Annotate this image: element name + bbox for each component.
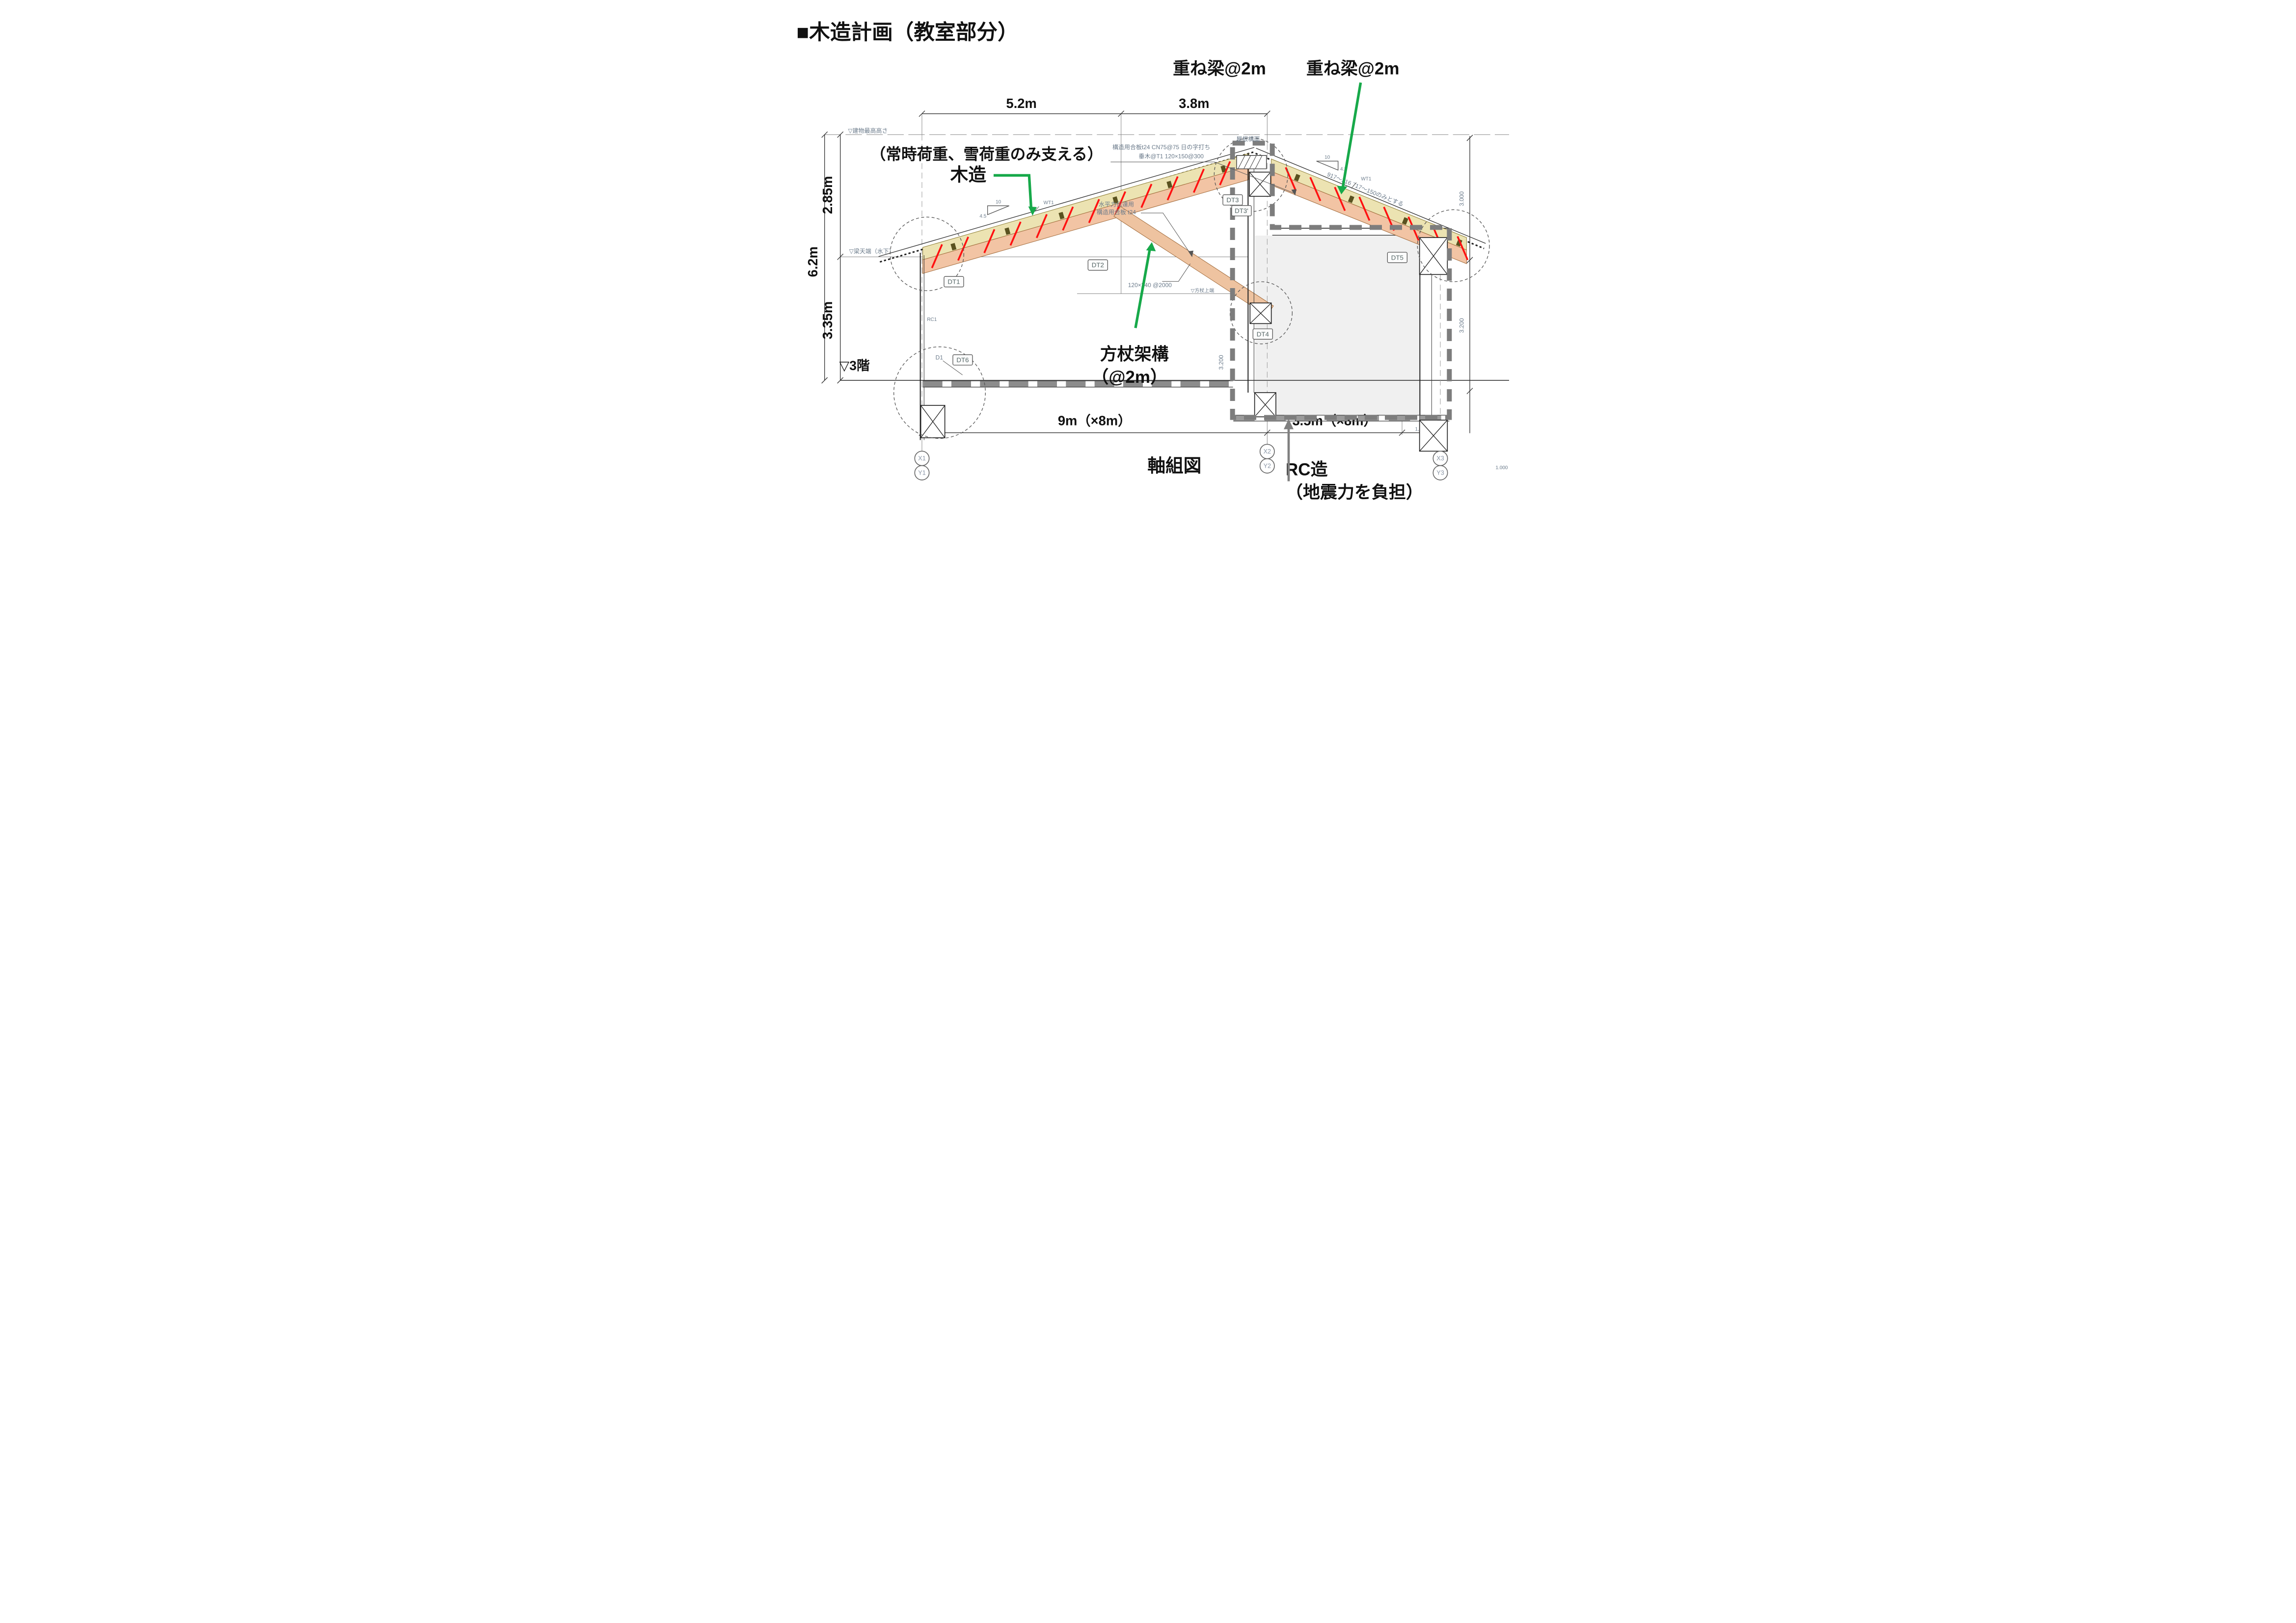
dim-right-upper: 3.000 <box>1459 191 1465 206</box>
callout-hojo-2: （@2m） <box>1091 368 1167 387</box>
bubble-x2: X2 <box>1264 448 1271 455</box>
callout-hojo-1: 方杖架構 <box>1100 345 1169 364</box>
tag-dt4: DT4 <box>1257 330 1270 338</box>
tag-dt2: DT2 <box>1092 262 1104 269</box>
slope-run-right: 10 <box>1324 155 1330 160</box>
dim-left-lower: 3.35m <box>820 301 835 340</box>
bubble-y3: Y3 <box>1436 469 1444 476</box>
knee-brace <box>1114 207 1273 316</box>
label-rc1: RC1 <box>927 317 937 322</box>
label-d1: D1 <box>936 354 944 361</box>
tag-dt3b: DT3' <box>1235 207 1248 214</box>
bubble-x1: X1 <box>918 455 925 462</box>
callout-load-note: （常時荷重、雪荷重のみ支える） <box>870 145 1103 163</box>
page-title: ■木造計画（教室部分） <box>796 21 1018 44</box>
level-highest: ▽建物最高高さ <box>848 127 888 134</box>
top-dimension: 5.2m 3.8m <box>919 96 1270 117</box>
dim-right-lower: 3.200 <box>1459 318 1465 333</box>
tag-dt6: DT6 <box>956 356 969 364</box>
structural-drawing: 5.2m 3.8m 2.85m 6.2m 3.35m 9m（×8m） 3.5m（… <box>765 0 1531 541</box>
leader-brace <box>1162 264 1190 281</box>
label-wt1-right: WT1 <box>1361 176 1372 182</box>
callout-rc-2: （地震力を負担） <box>1286 483 1423 502</box>
bubble-y2: Y2 <box>1264 462 1271 469</box>
dim-1000b: 1.000 <box>1495 465 1508 471</box>
callout-mokuzo: 木造 <box>950 164 987 185</box>
tag-dt1: DT1 <box>947 278 960 286</box>
slide: 5.2m 3.8m 2.85m 6.2m 3.35m 9m（×8m） 3.5m（… <box>765 0 1531 541</box>
ridge-joint <box>1237 156 1267 169</box>
note-sheathing: 構造用合板t24 CN75@75 日の字打ち <box>1112 143 1210 151</box>
note-brace-size: 120×240 @2000 <box>1128 282 1172 289</box>
level-labels: ▽建物最高高さ ▽梁天端（水下） ▽方杖上端 ▽3階 <box>839 127 1215 373</box>
dim-bottom-left: 9m（×8m） <box>1058 413 1132 428</box>
dim-left-total: 6.2m <box>805 246 820 277</box>
bubble-y1: Y1 <box>918 469 925 476</box>
slope-run-left: 10 <box>996 199 1001 205</box>
bubble-x3: X3 <box>1436 455 1444 462</box>
label-wt1-left: WT1 <box>1044 200 1054 206</box>
tag-dt5: DT5 <box>1391 254 1404 261</box>
tag-dt3: DT3 <box>1226 196 1239 204</box>
note-horiz1: 水平力伝達用 <box>1099 201 1134 208</box>
slope-rise-left: 4.5 <box>979 213 986 219</box>
left-dimension: 2.85m 6.2m 3.35m <box>805 132 843 383</box>
dim-mid-wall: 3.200 <box>1218 355 1225 370</box>
green-arrow-kasane <box>1343 82 1361 188</box>
dim-top-right: 3.8m <box>1179 96 1209 111</box>
level-floor3: ▽3階 <box>839 358 870 373</box>
note-horiz2: 構造用合板 t24 <box>1097 209 1136 216</box>
callout-kasane-1: 重ね梁@2m <box>1173 59 1266 79</box>
level-brace-top: ▽方杖上端 <box>1191 287 1215 293</box>
dim-left-upper: 2.85m <box>820 176 835 214</box>
note-roof-plane: 屋根構面 <box>1236 135 1260 142</box>
callout-rc-1: RC造 <box>1286 460 1328 479</box>
callout-kasane-2: 重ね梁@2m <box>1306 59 1400 79</box>
note-rafter: 垂木@T1 120×150@300 <box>1138 153 1204 160</box>
dim-top-left: 5.2m <box>1006 96 1037 111</box>
callout-jikugumi: 軸組図 <box>1147 456 1201 476</box>
